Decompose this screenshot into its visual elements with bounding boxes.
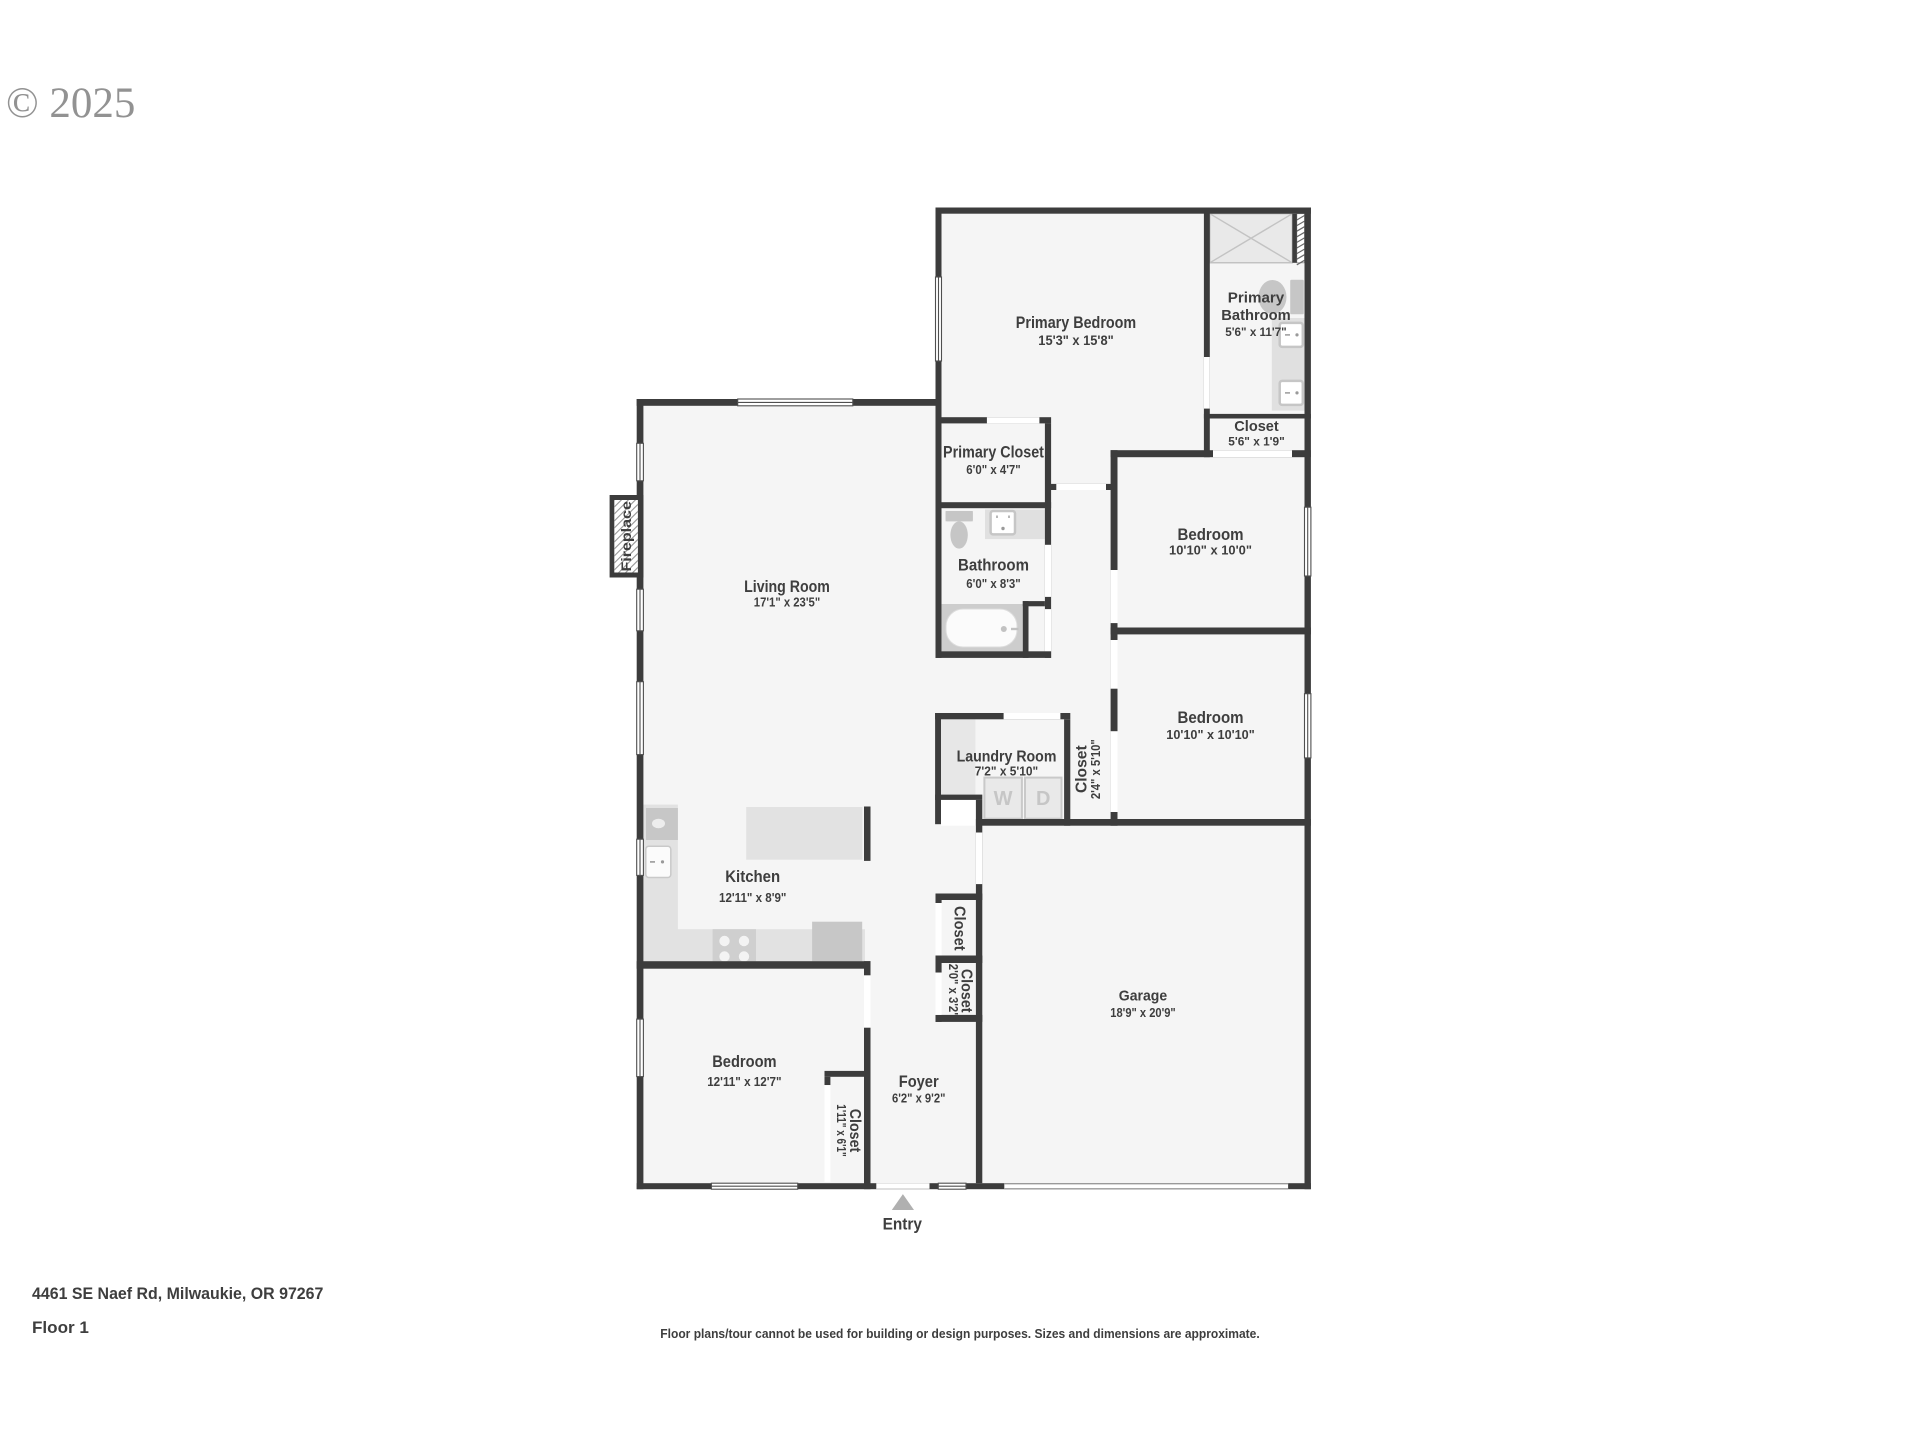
svg-text:Floor plans/tour cannot be use: Floor plans/tour cannot be used for buil…: [660, 1326, 1259, 1341]
svg-text:Fireplace: Fireplace: [618, 501, 634, 572]
svg-text:7'2" x 5'10": 7'2" x 5'10": [975, 764, 1038, 779]
svg-text:17'1" x 23'5": 17'1" x 23'5": [754, 596, 820, 610]
svg-text:12'11" x 8'9": 12'11" x 8'9": [719, 890, 786, 905]
svg-text:5'6" x 1'9": 5'6" x 1'9": [1228, 434, 1284, 448]
svg-text:Bathroom: Bathroom: [1221, 307, 1290, 324]
svg-text:Bedroom: Bedroom: [712, 1052, 776, 1071]
svg-text:Bedroom: Bedroom: [1177, 708, 1243, 727]
svg-text:2'4" x 5'10": 2'4" x 5'10": [1089, 739, 1103, 799]
svg-text:© 2025: © 2025: [6, 80, 135, 127]
svg-text:4461 SE Naef Rd, Milwaukie, OR: 4461 SE Naef Rd, Milwaukie, OR 97267: [32, 1284, 323, 1303]
svg-text:Living Room: Living Room: [744, 577, 830, 596]
svg-text:Closet: Closet: [1234, 418, 1278, 435]
svg-text:10'10" x 10'0": 10'10" x 10'0": [1169, 543, 1252, 558]
svg-text:Closet: Closet: [951, 906, 968, 951]
svg-text:6'0" x 8'3": 6'0" x 8'3": [966, 576, 1020, 591]
svg-text:Primary: Primary: [1228, 289, 1285, 306]
svg-text:W: W: [994, 788, 1013, 810]
svg-text:Entry: Entry: [883, 1215, 923, 1234]
svg-text:2'0" x 3'2": 2'0" x 3'2": [946, 964, 960, 1018]
svg-text:6'0" x 4'7": 6'0" x 4'7": [966, 462, 1020, 477]
svg-text:Foyer: Foyer: [899, 1072, 939, 1091]
svg-text:5'6" x 11'7": 5'6" x 11'7": [1225, 325, 1286, 339]
svg-text:1'11" x 6'1": 1'11" x 6'1": [834, 1104, 848, 1156]
svg-text:18'9" x 20'9": 18'9" x 20'9": [1110, 1005, 1175, 1020]
svg-text:12'11" x 12'7": 12'11" x 12'7": [707, 1074, 781, 1089]
svg-text:6'2" x 9'2": 6'2" x 9'2": [892, 1091, 945, 1106]
svg-text:Primary Closet: Primary Closet: [943, 443, 1044, 462]
svg-text:Bedroom: Bedroom: [1177, 525, 1243, 544]
svg-text:10'10" x 10'10": 10'10" x 10'10": [1166, 727, 1254, 742]
svg-text:Garage: Garage: [1119, 988, 1167, 1005]
svg-text:Bathroom: Bathroom: [958, 556, 1029, 575]
svg-text:Closet: Closet: [1074, 745, 1091, 793]
svg-text:Kitchen: Kitchen: [725, 867, 780, 886]
svg-text:Primary Bedroom: Primary Bedroom: [1016, 313, 1136, 332]
svg-text:Floor 1: Floor 1: [32, 1318, 89, 1337]
svg-text:D: D: [1036, 788, 1050, 810]
svg-text:15'3" x 15'8": 15'3" x 15'8": [1038, 333, 1113, 348]
